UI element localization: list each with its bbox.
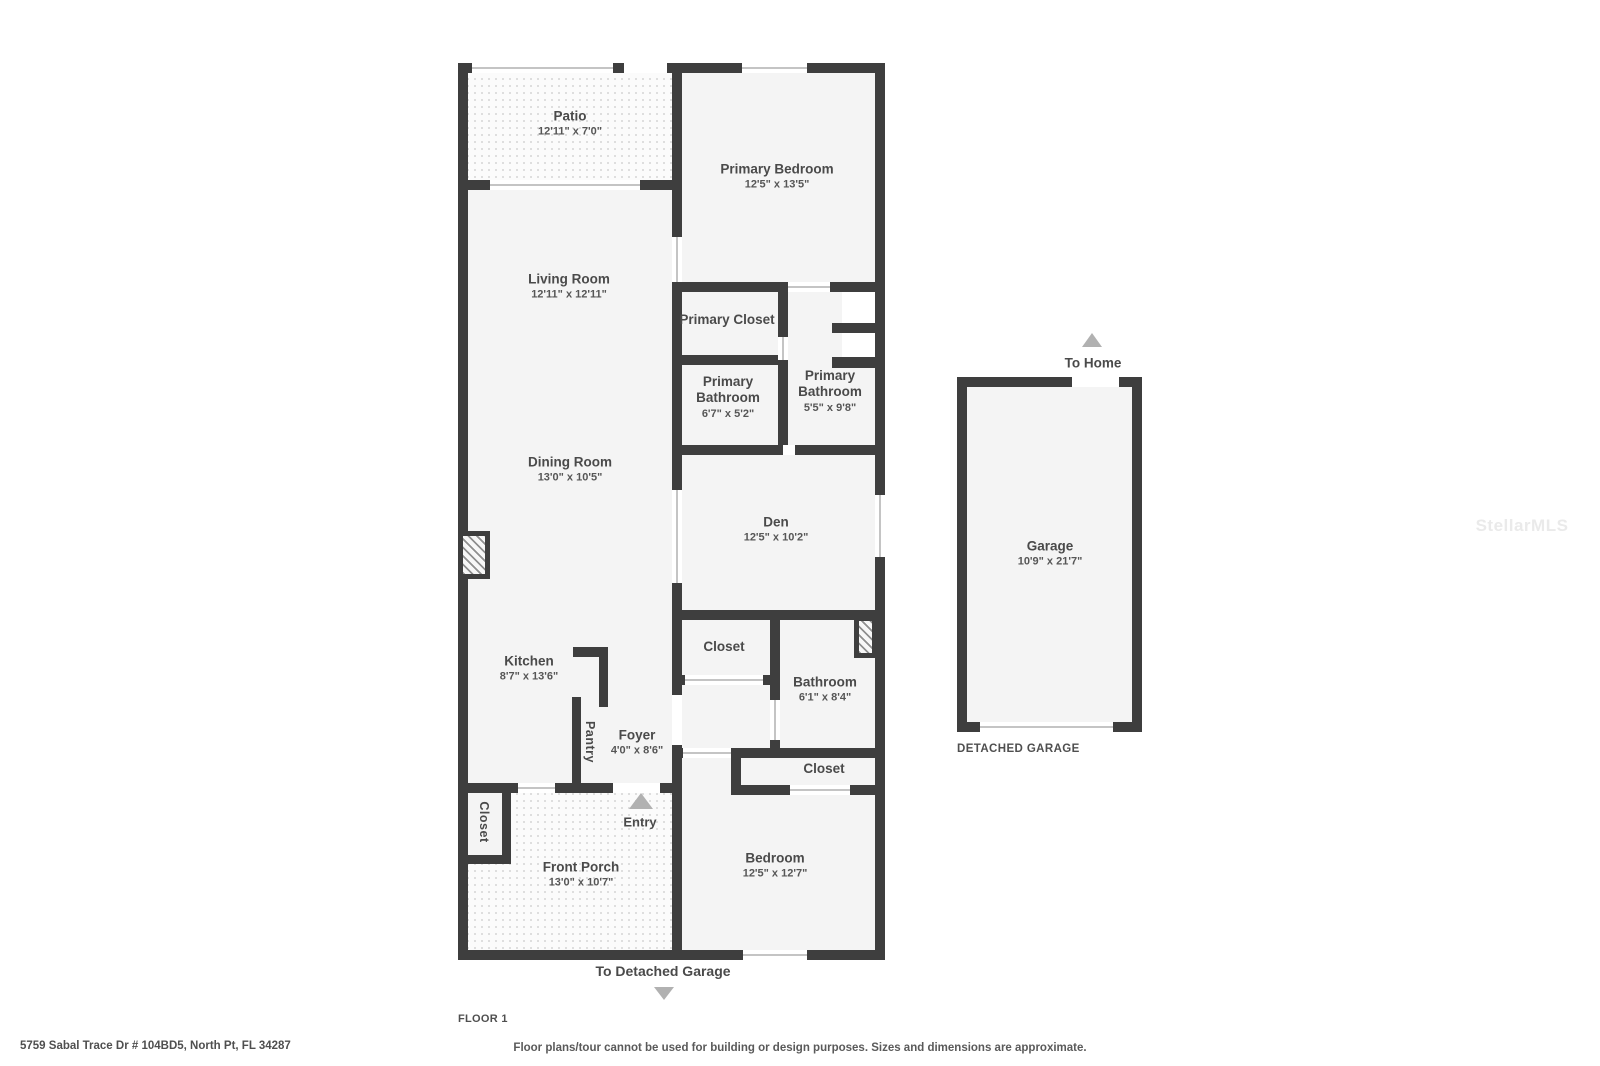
room-bedroom: Bedroom 12'5" x 12'7" (743, 850, 808, 881)
wall (832, 357, 885, 368)
window (743, 950, 807, 960)
detached-garage-label: DETACHED GARAGE (957, 743, 1080, 755)
room-dining-room: Dining Room 13'0" x 10'5" (528, 454, 612, 485)
garage-door (980, 722, 1113, 732)
room-primary-bedroom: Primary Bedroom 12'5" x 13'5" (720, 161, 833, 192)
room-bedroom-closet: Closet (803, 761, 844, 777)
wall (672, 445, 885, 455)
wall (458, 63, 468, 960)
niche-floor (842, 292, 875, 323)
wall-opening (672, 695, 682, 745)
door-opening (685, 675, 763, 685)
wall (502, 793, 511, 855)
room-primary-bathroom-a: Primary Bathroom 6'7" x 5'2" (687, 374, 769, 422)
room-foyer: Foyer 4'0" x 8'6" (611, 727, 663, 758)
room-primary-bathroom-b: Primary Bathroom 5'5" x 9'8" (789, 368, 871, 416)
room-patio: Patio 12'11" x 7'0" (538, 108, 602, 139)
garage-door-opening (1072, 377, 1119, 387)
entry-arrow-icon (629, 793, 653, 809)
wall (458, 855, 511, 864)
to-detached-garage-arrow-icon (654, 987, 674, 1000)
room-porch-closet: Closet (477, 801, 491, 842)
wall (672, 282, 885, 292)
garage-wall (957, 377, 967, 732)
room-bathroom: Bathroom 6'1" x 8'4" (793, 674, 857, 705)
door-opening (672, 490, 682, 583)
shower (854, 616, 877, 658)
floor-plan: Patio 12'11" x 7'0" Primary Bedroom 12'5… (0, 0, 1600, 1066)
room-den: Den 12'5" x 10'2" (744, 514, 809, 545)
wall (778, 292, 788, 452)
door-opening (778, 337, 788, 360)
room-garage: Garage 10'9" x 21'7" (1018, 538, 1083, 569)
wall (832, 323, 885, 333)
floor-label: FLOOR 1 (458, 1013, 508, 1025)
room-hall-closet: Closet (703, 639, 744, 655)
fireplace-niche (458, 531, 490, 579)
room-front-porch: Front Porch 13'0" x 10'7" (543, 859, 620, 890)
room-kitchen: Kitchen 8'7" x 13'6" (500, 653, 558, 684)
garage-wall (1132, 377, 1142, 732)
room-pantry: Pantry (583, 721, 597, 763)
address: 5759 Sabal Trace Dr # 104BD5, North Pt, … (20, 1040, 291, 1052)
window (875, 495, 885, 557)
door-opening (770, 700, 780, 740)
wall (599, 647, 608, 707)
to-home-label: To Home (1065, 356, 1122, 371)
window (518, 783, 555, 793)
entry-label: Entry (623, 815, 656, 830)
door-opening (683, 748, 731, 758)
window (742, 63, 807, 73)
door-opening (672, 237, 682, 282)
wall-opening (624, 63, 667, 73)
window (490, 180, 640, 190)
disclaimer: Floor plans/tour cannot be used for buil… (513, 1042, 1086, 1054)
entry-opening (613, 783, 660, 793)
wall (572, 697, 581, 793)
door-opening (788, 282, 830, 292)
room-living-room: Living Room 12'11" x 12'11" (528, 271, 610, 302)
wall-opening (783, 445, 795, 455)
wall (672, 355, 788, 365)
window (472, 63, 613, 73)
niche-floor (842, 333, 875, 357)
to-detached-garage-label: To Detached Garage (595, 963, 730, 979)
stellar-mls-watermark: StellarMLS (1476, 516, 1569, 536)
door-opening (790, 785, 850, 795)
room-primary-closet: Primary Closet (679, 312, 774, 328)
to-home-arrow-icon (1082, 333, 1102, 347)
